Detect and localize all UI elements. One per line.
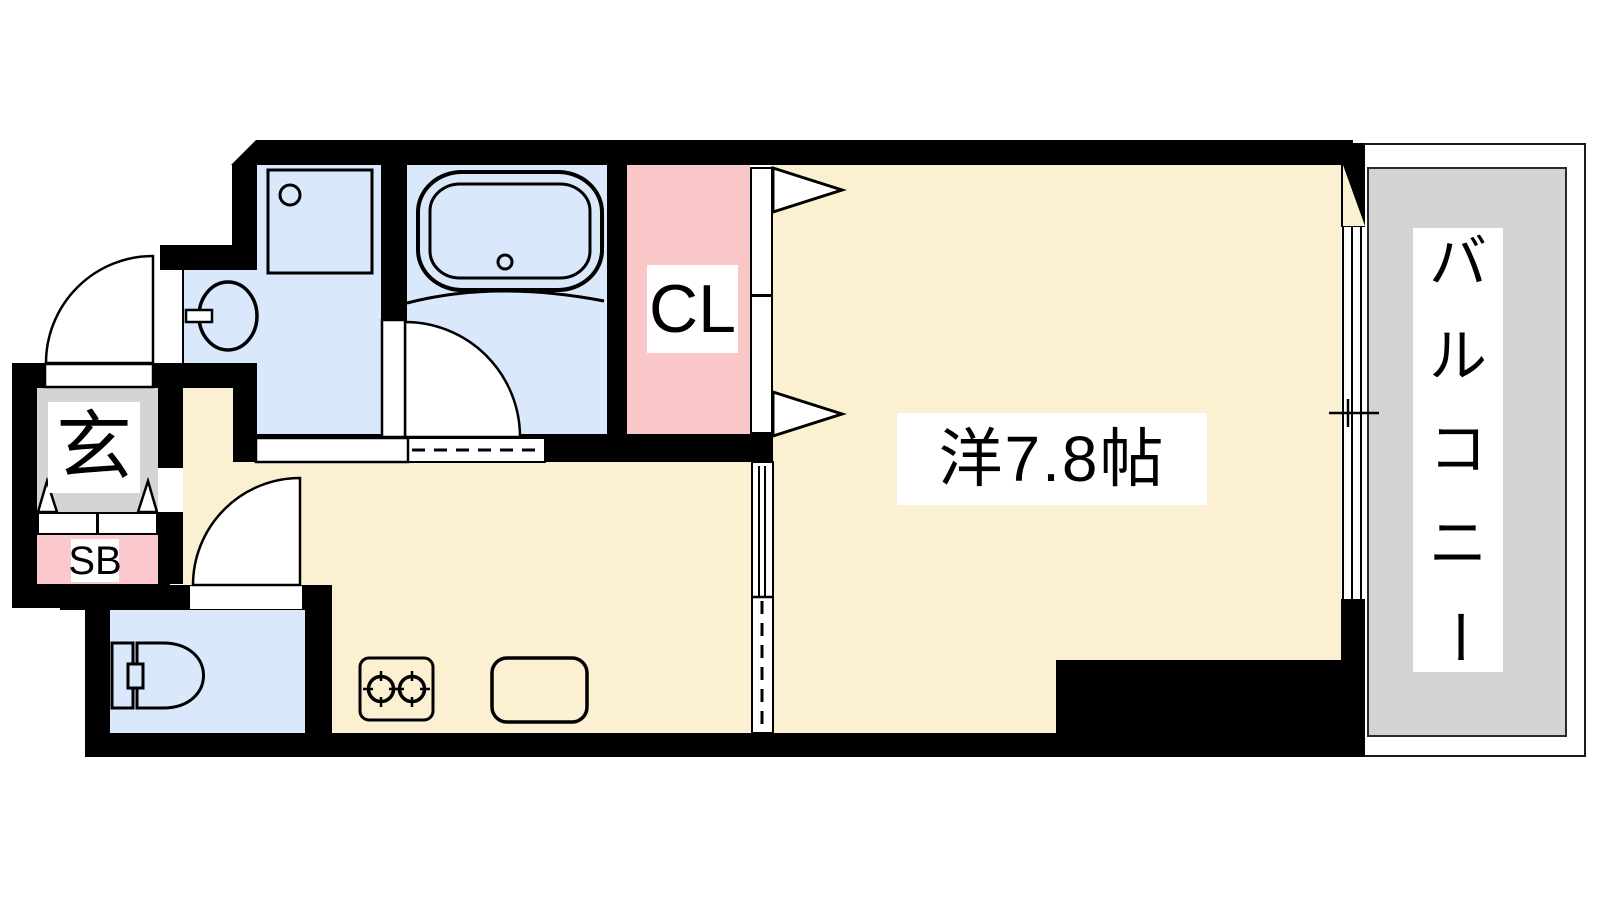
balcony-label-char: ニ — [1429, 515, 1487, 573]
closet-label-text: CL — [649, 275, 736, 343]
fixtures-layer — [0, 0, 1600, 900]
entrance-door-leaf — [45, 364, 153, 387]
sliding-door-panel — [256, 438, 408, 462]
bathtub-outer — [418, 172, 602, 290]
balcony-label: バ ル コ ニ ー — [1413, 228, 1503, 672]
floorplan-canvas: 玄 SB CL 洋7.8帖 バ ル コ ニ ー — [0, 0, 1600, 900]
closet-door-symbol — [773, 168, 842, 212]
bathtub-drain — [498, 255, 512, 269]
sink-faucet — [186, 310, 212, 322]
toilet-door-swing — [193, 478, 300, 585]
balcony-label-char: コ — [1429, 421, 1487, 479]
shoe-box-label-text: SB — [68, 541, 121, 581]
wall-chamfer — [1343, 165, 1365, 226]
toilet-bowl — [137, 643, 204, 708]
balcony-label-char: ー — [1429, 608, 1487, 666]
burner-ticks — [363, 671, 430, 707]
western-room-label-text: 洋7.8帖 — [939, 427, 1166, 491]
entrance-label: 玄 — [48, 402, 140, 493]
toilet-seat-step — [128, 664, 143, 688]
bathroom-door-leaf — [382, 320, 405, 437]
wall-chamfer — [230, 140, 256, 166]
toilet-doorway — [190, 586, 302, 609]
kitchen-sink — [492, 658, 587, 722]
washer-drain — [280, 185, 300, 205]
shoe-box-label: SB — [71, 539, 119, 582]
bathroom-door-swing — [405, 322, 520, 437]
balcony-label-char: バ — [1429, 234, 1487, 292]
balcony-label-char: ル — [1429, 328, 1487, 386]
closet-label: CL — [647, 265, 738, 353]
western-room-label: 洋7.8帖 — [897, 413, 1207, 505]
bathtub-inner — [430, 184, 590, 278]
entrance-label-text: 玄 — [56, 410, 132, 486]
entrance-step-mark — [138, 481, 157, 512]
entrance-door-swing — [46, 256, 153, 363]
closet-door-symbol — [773, 392, 842, 436]
bathtub-apron-curve — [407, 291, 604, 303]
